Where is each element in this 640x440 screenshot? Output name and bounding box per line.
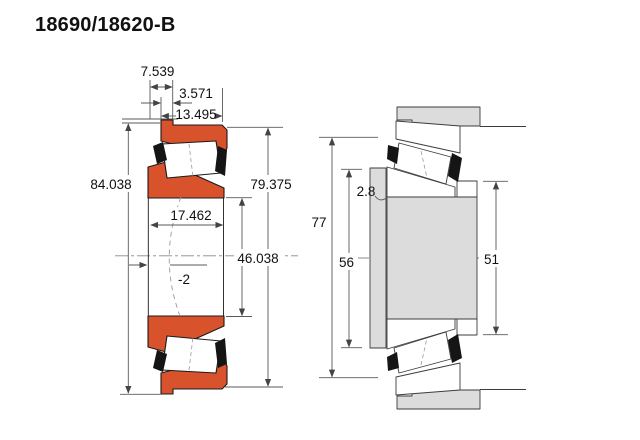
- dim-shaft-shoulder: 56: [339, 255, 354, 270]
- dim-overall-width: 17.462: [170, 208, 211, 223]
- roller-top: [162, 141, 221, 178]
- dim-flange-od: 84.038: [90, 177, 131, 192]
- technical-drawing: 7.539 3.571 13.495 84.038 79.375 17.462 …: [0, 0, 640, 440]
- dim-cup-od: 79.375: [250, 177, 291, 192]
- mounted-cage-bottom-left: [387, 352, 399, 371]
- roller-bottom: [162, 336, 221, 373]
- spacer-shoulder-top: [457, 181, 477, 197]
- dim-load-center: -2: [178, 272, 190, 287]
- dim-fillet-radius: 2.8: [357, 184, 376, 199]
- dim-cone-protrusion: 7.539: [141, 64, 175, 79]
- shaft-seat: [387, 197, 477, 319]
- mounted-cage-top-left: [387, 145, 399, 164]
- dim-housing-shoulder: 77: [311, 215, 326, 230]
- dim-flange-width: 3.571: [179, 86, 213, 101]
- spacer-shoulder-bottom: [457, 319, 477, 335]
- dim-spacer-shoulder: 51: [484, 252, 499, 267]
- dim-bore: 46.038: [237, 251, 278, 266]
- dim-cup-width: 13.495: [175, 107, 216, 122]
- catalog-page: 18690/18620-B: [0, 0, 640, 440]
